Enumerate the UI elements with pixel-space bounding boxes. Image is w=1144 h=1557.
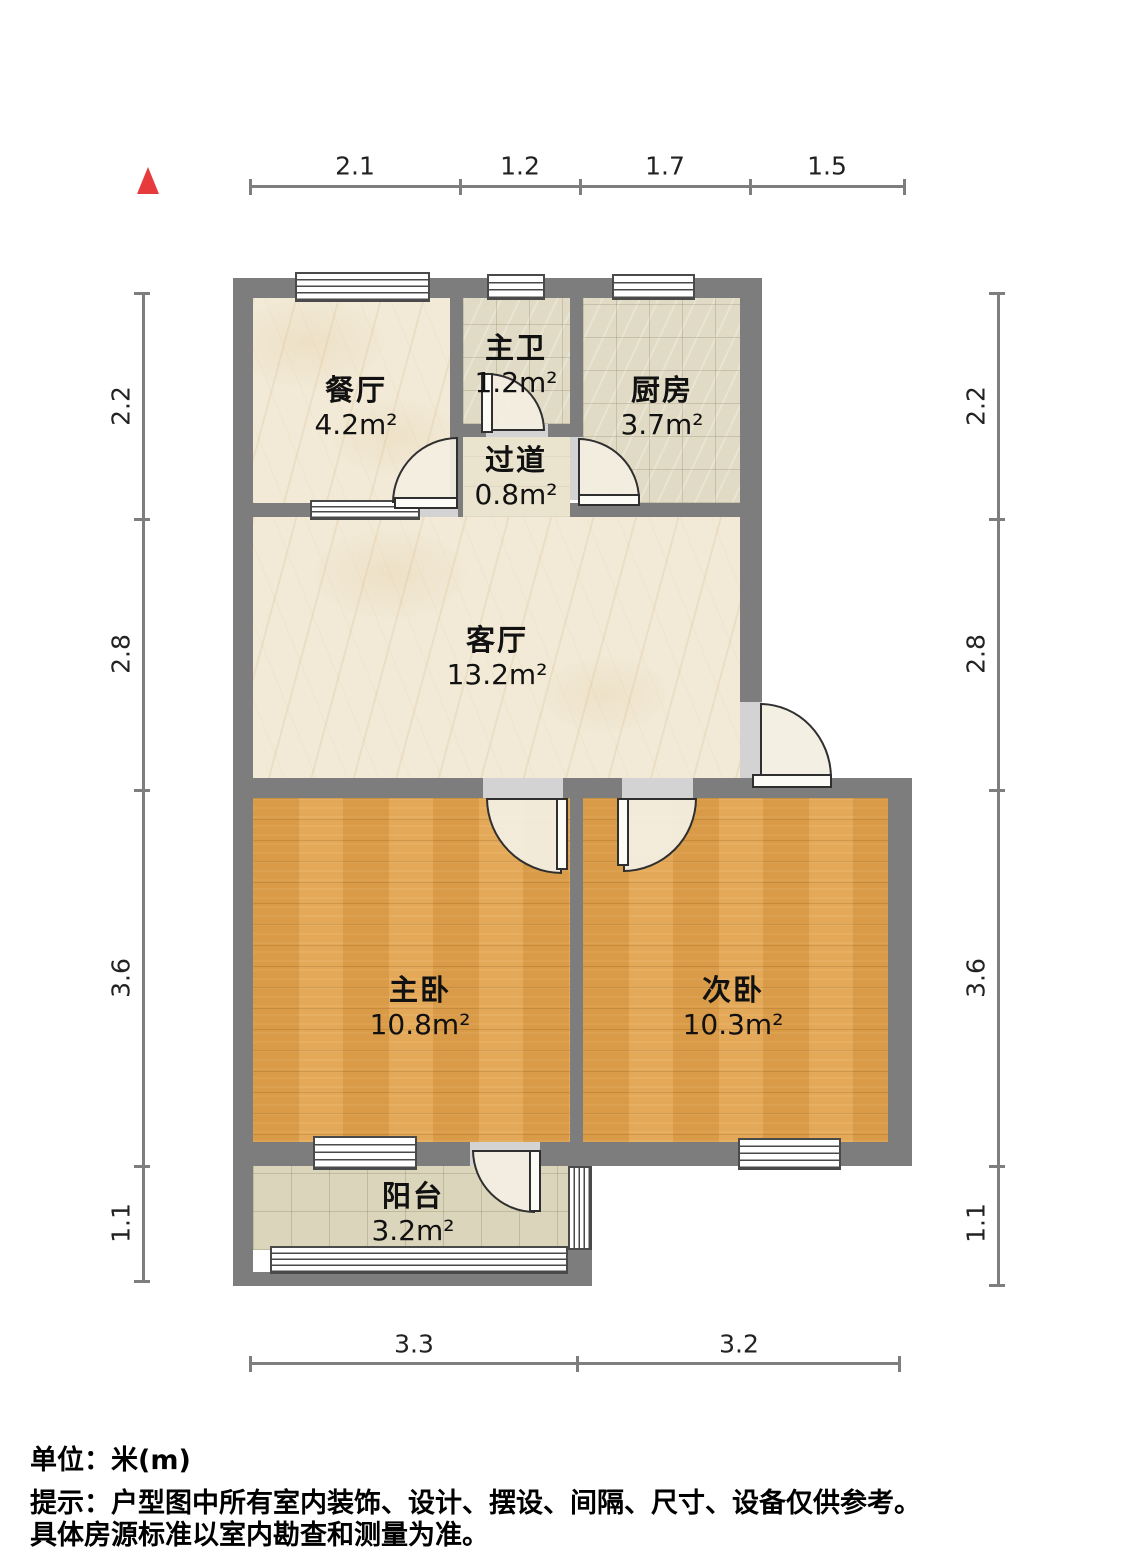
- disclaimer-line-2: 具体房源标准以室内勘查和测量为准。: [30, 1513, 489, 1552]
- dim-top-1: 2.1: [335, 152, 375, 181]
- window-dining-top: [295, 272, 430, 302]
- dim-left-1: 2.2: [107, 386, 136, 426]
- dim-top-3: 1.7: [645, 152, 685, 181]
- label-second-bedroom: 次卧 10.3m²: [683, 973, 784, 1043]
- wall-bath-bottom-b: [548, 424, 570, 437]
- room-name: 主卫: [474, 331, 557, 366]
- wall-right-lower: [888, 798, 912, 1166]
- room-area: 13.2m²: [447, 659, 548, 693]
- window-master-bottom: [313, 1136, 417, 1170]
- dim-right-3: 3.6: [962, 958, 991, 998]
- dim-line-bottom: [250, 1362, 900, 1365]
- dim-bottom-2: 3.2: [719, 1330, 759, 1359]
- wall-right-upper: [740, 298, 762, 702]
- dim-top-2: 1.2: [500, 152, 540, 181]
- label-living: 客厅 13.2m²: [447, 623, 548, 693]
- north-compass-icon: [137, 167, 159, 194]
- room-area: 10.8m²: [370, 1009, 471, 1043]
- room-name: 主卧: [370, 973, 471, 1008]
- door-second-leaf: [617, 798, 629, 866]
- window-second-bottom: [738, 1138, 841, 1170]
- window-kitchen-top: [612, 274, 695, 300]
- dim-right-1: 2.2: [962, 386, 991, 426]
- room-area: 4.2m²: [314, 409, 397, 443]
- label-kitchen: 厨房 3.7m²: [620, 373, 703, 443]
- wall-left: [233, 278, 253, 1286]
- door-entry-swing: [760, 703, 832, 778]
- room-name: 次卧: [683, 973, 784, 1008]
- room-area: 3.2m²: [371, 1215, 454, 1249]
- dim-left-2: 2.8: [107, 634, 136, 674]
- threshold-entry: [740, 702, 762, 778]
- dim-left-4: 1.1: [107, 1203, 136, 1243]
- room-name: 厨房: [620, 373, 703, 408]
- label-dining: 餐厅 4.2m²: [314, 373, 397, 443]
- window-balcony-right: [568, 1166, 592, 1250]
- window-balcony-bottom: [270, 1246, 568, 1274]
- label-bathroom: 主卫 1.2m²: [474, 331, 557, 401]
- wall-balcony-sill: [253, 1272, 592, 1286]
- dim-line-left: [142, 293, 145, 1282]
- wall-living-bedrooms-b: [563, 778, 622, 798]
- room-name: 阳台: [371, 1179, 454, 1214]
- room-name: 过道: [474, 443, 557, 478]
- threshold-second-bedroom: [622, 778, 693, 798]
- wall-living-bedrooms-a: [253, 778, 483, 798]
- door-balcony-leaf: [529, 1150, 541, 1212]
- wall-bedroom-divider: [570, 798, 583, 1142]
- dim-line-top: [250, 185, 905, 188]
- room-name: 客厅: [447, 623, 548, 658]
- door-kitchen-leaf: [578, 494, 640, 506]
- label-master-bedroom: 主卧 10.8m²: [370, 973, 471, 1043]
- door-master-leaf: [556, 798, 568, 870]
- wall-bath-kitchen: [570, 298, 583, 437]
- door-dining-leaf: [394, 497, 458, 509]
- door-entry-leaf: [752, 774, 832, 788]
- label-balcony: 阳台 3.2m²: [371, 1179, 454, 1249]
- dim-right-4: 1.1: [962, 1203, 991, 1243]
- dim-top-4: 1.5: [807, 152, 847, 181]
- room-area: 10.3m²: [683, 1009, 784, 1043]
- threshold-master-bedroom: [483, 778, 563, 798]
- dim-bottom-1: 3.3: [394, 1330, 434, 1359]
- unit-note: 单位：米(m): [30, 1438, 191, 1477]
- window-bathroom-top: [487, 274, 545, 300]
- room-area: 0.8m²: [474, 479, 557, 513]
- label-hallway: 过道 0.8m²: [474, 443, 557, 513]
- floor-plan-canvas: 餐厅 4.2m² 主卫 1.2m² 厨房 3.7m² 过道 0.8m² 客厅 1…: [0, 0, 1144, 1557]
- room-area: 1.2m²: [474, 367, 557, 401]
- room-name: 餐厅: [314, 373, 397, 408]
- room-area: 3.7m²: [620, 409, 703, 443]
- dim-left-3: 3.6: [107, 958, 136, 998]
- dim-right-2: 2.8: [962, 634, 991, 674]
